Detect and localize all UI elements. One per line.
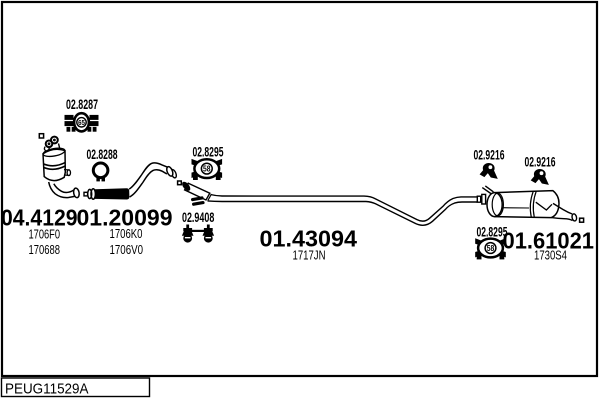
svg-text:1706F0: 1706F0 — [29, 228, 61, 242]
svg-text:02.8288: 02.8288 — [87, 147, 118, 163]
svg-text:PEUG11529A: PEUG11529A — [5, 381, 89, 398]
svg-text:1706K0: 1706K0 — [110, 227, 143, 241]
svg-text:02.9408: 02.9408 — [182, 210, 214, 226]
svg-text:1706V0: 1706V0 — [110, 243, 144, 257]
svg-text:02.8287: 02.8287 — [66, 97, 98, 113]
svg-text:02.9216: 02.9216 — [474, 148, 505, 164]
svg-text:1730S4: 1730S4 — [534, 248, 567, 262]
svg-text:1717JN: 1717JN — [293, 248, 326, 262]
svg-text:02.9216: 02.9216 — [525, 155, 556, 171]
svg-text:170688: 170688 — [29, 243, 61, 257]
svg-text:65: 65 — [78, 118, 85, 127]
svg-text:04.4129: 04.4129 — [1, 204, 78, 230]
